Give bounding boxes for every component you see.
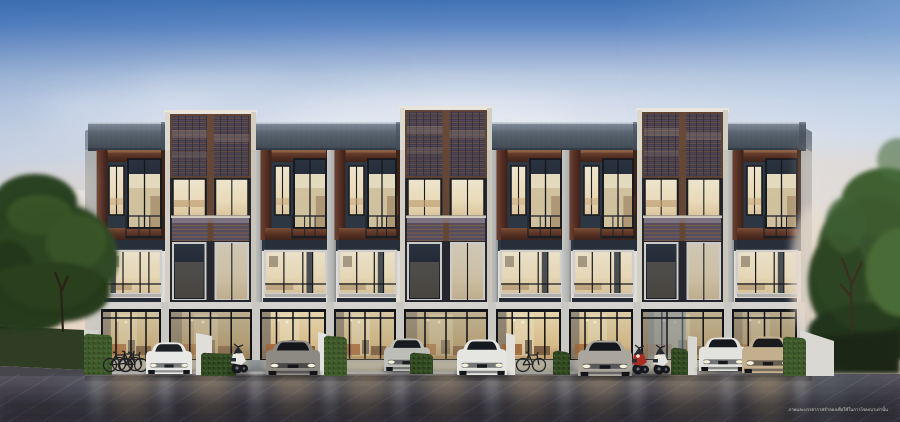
svg-text:ภาพและบรรยากาศจำลองเพื่อใช้ในก: ภาพและบรรยากาศจำลองเพื่อใช้ในการโฆษณาเท่…: [788, 406, 888, 412]
